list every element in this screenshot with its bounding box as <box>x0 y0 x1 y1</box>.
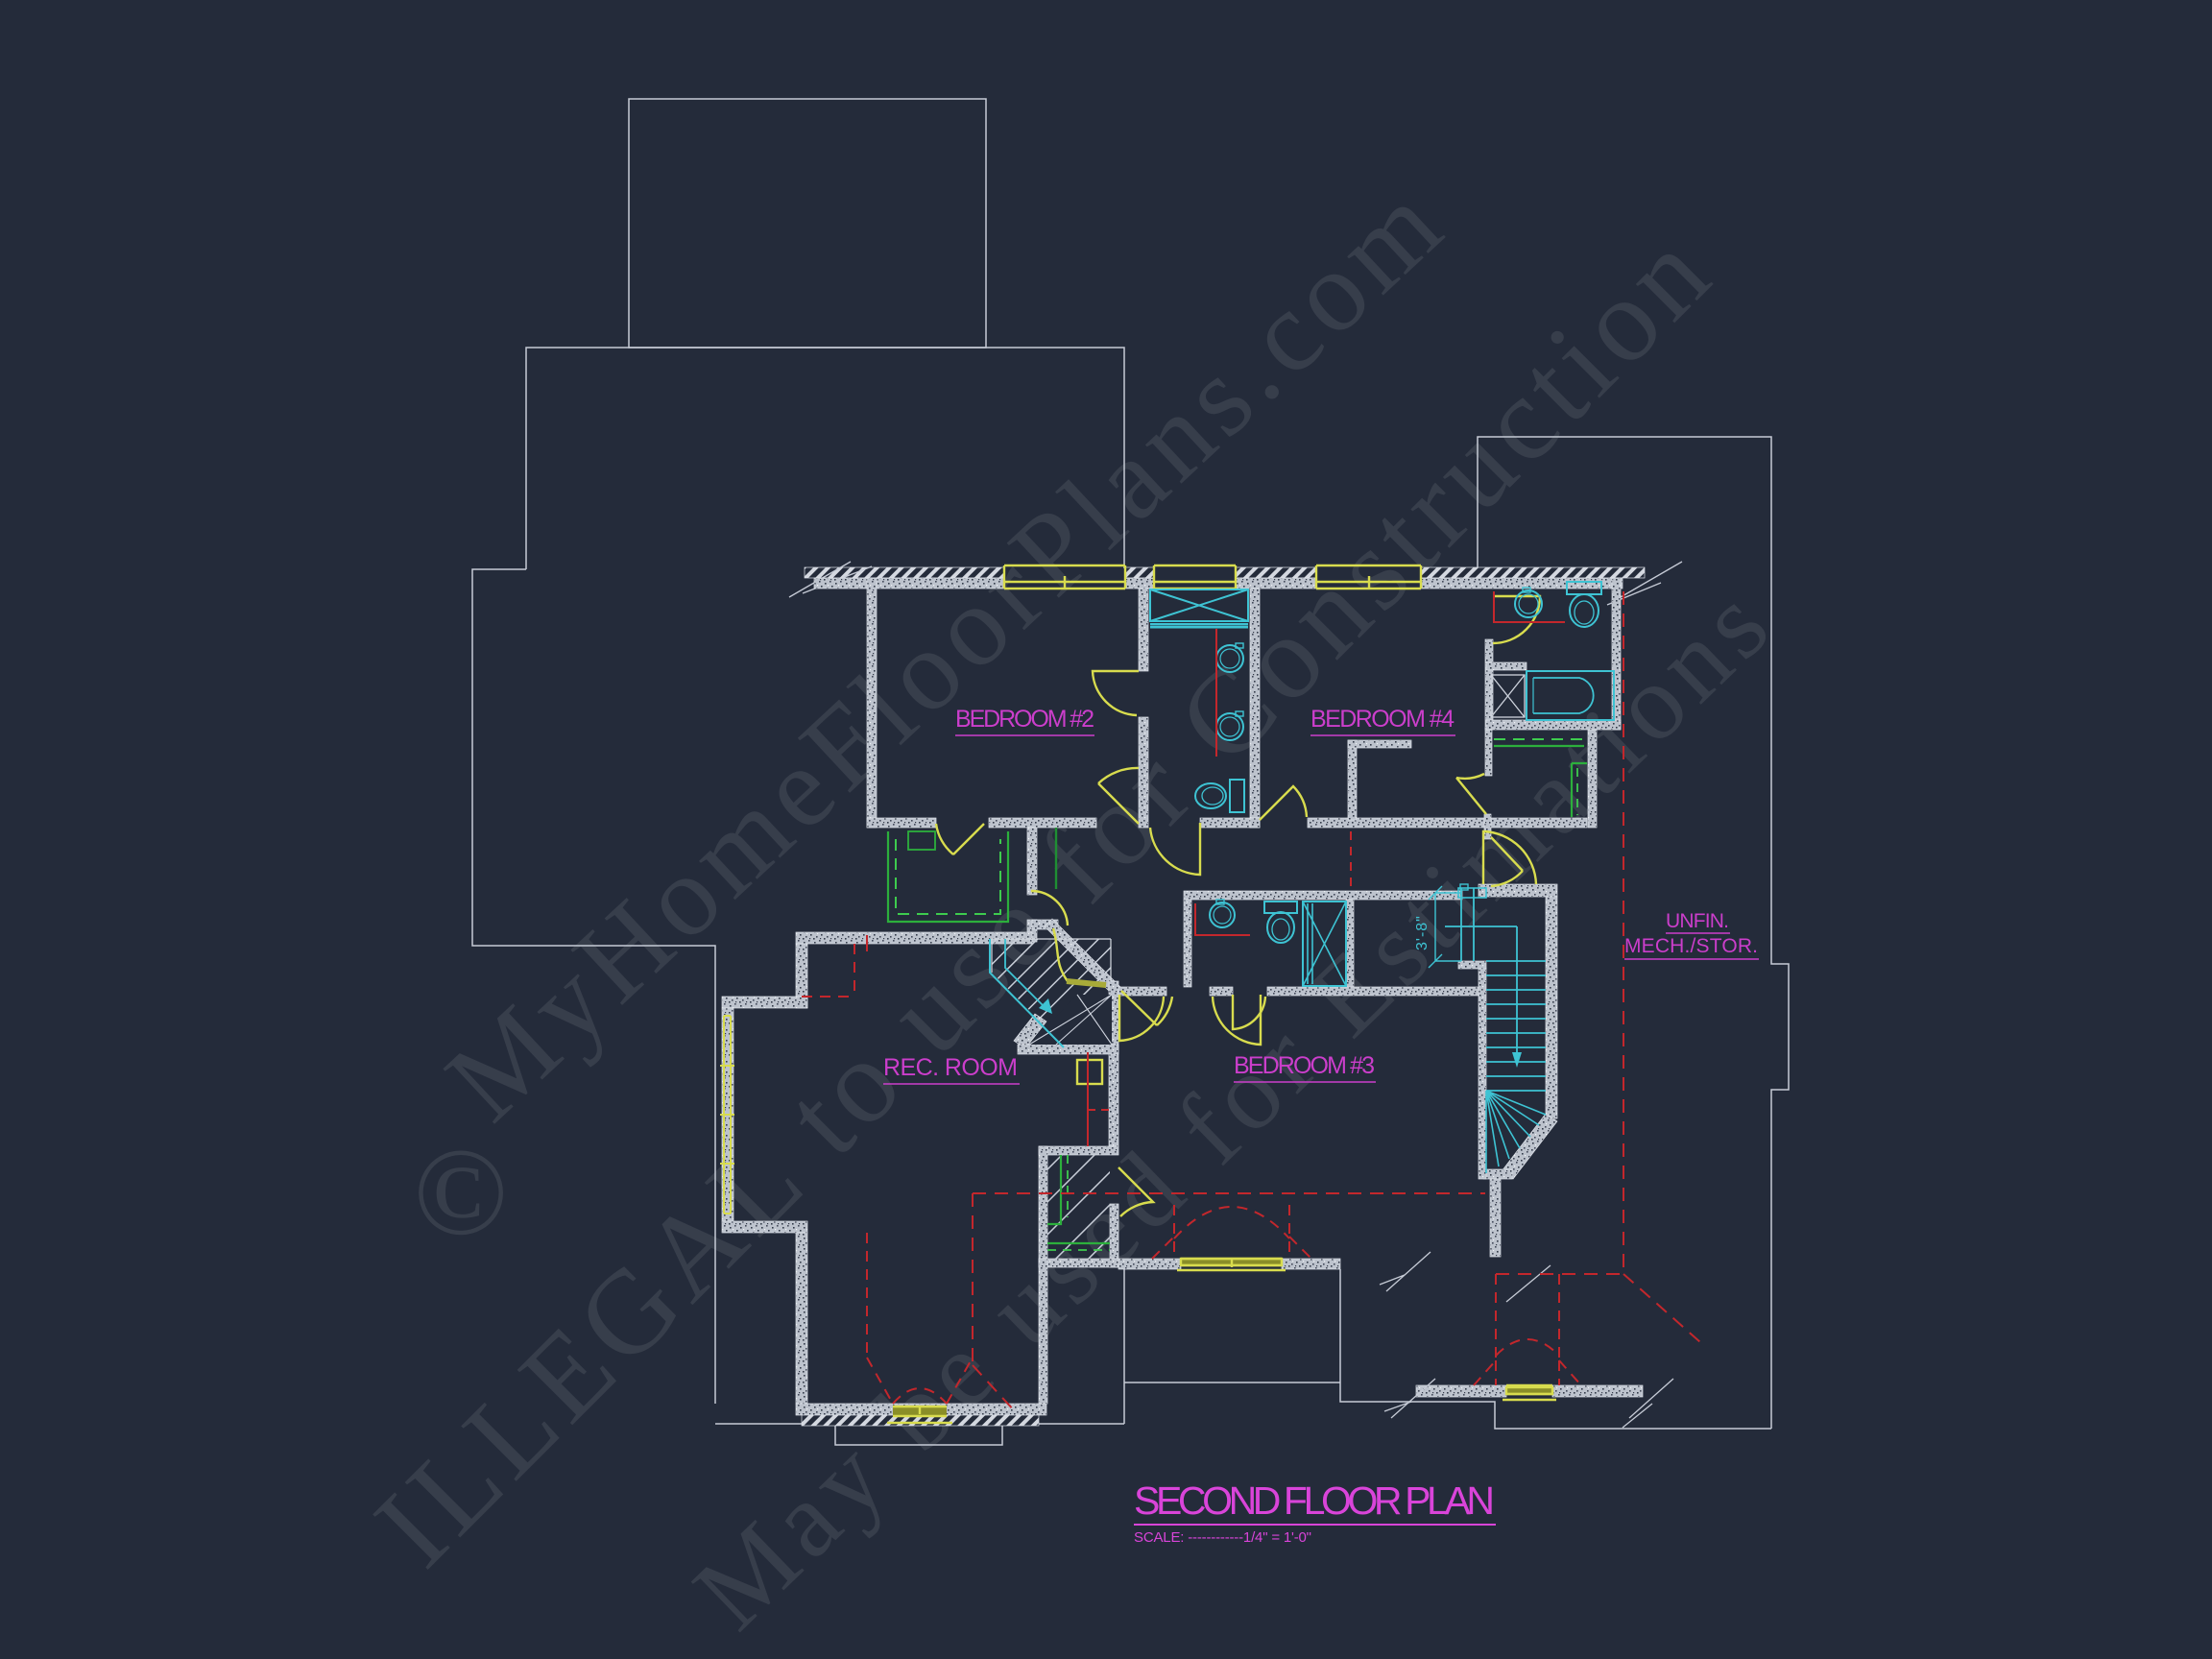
svg-text:BEDROOM #4: BEDROOM #4 <box>1310 706 1455 733</box>
svg-text:REC. ROOM: REC. ROOM <box>883 1054 1018 1081</box>
svg-text:SCALE: ------------1/4" = 1'-0: SCALE: ------------1/4" = 1'-0" <box>1134 1529 1311 1546</box>
svg-text:MECH./STOR.: MECH./STOR. <box>1624 935 1758 957</box>
svg-text:BEDROOM #2: BEDROOM #2 <box>955 706 1094 733</box>
svg-text:BEDROOM #3: BEDROOM #3 <box>1234 1052 1375 1079</box>
svg-text:©: © <box>414 1123 509 1262</box>
svg-text:3'-8": 3'-8" <box>1414 915 1431 950</box>
svg-text:UNFIN.: UNFIN. <box>1666 910 1729 932</box>
svg-text:SECOND FLOOR PLAN: SECOND FLOOR PLAN <box>1134 1479 1495 1523</box>
